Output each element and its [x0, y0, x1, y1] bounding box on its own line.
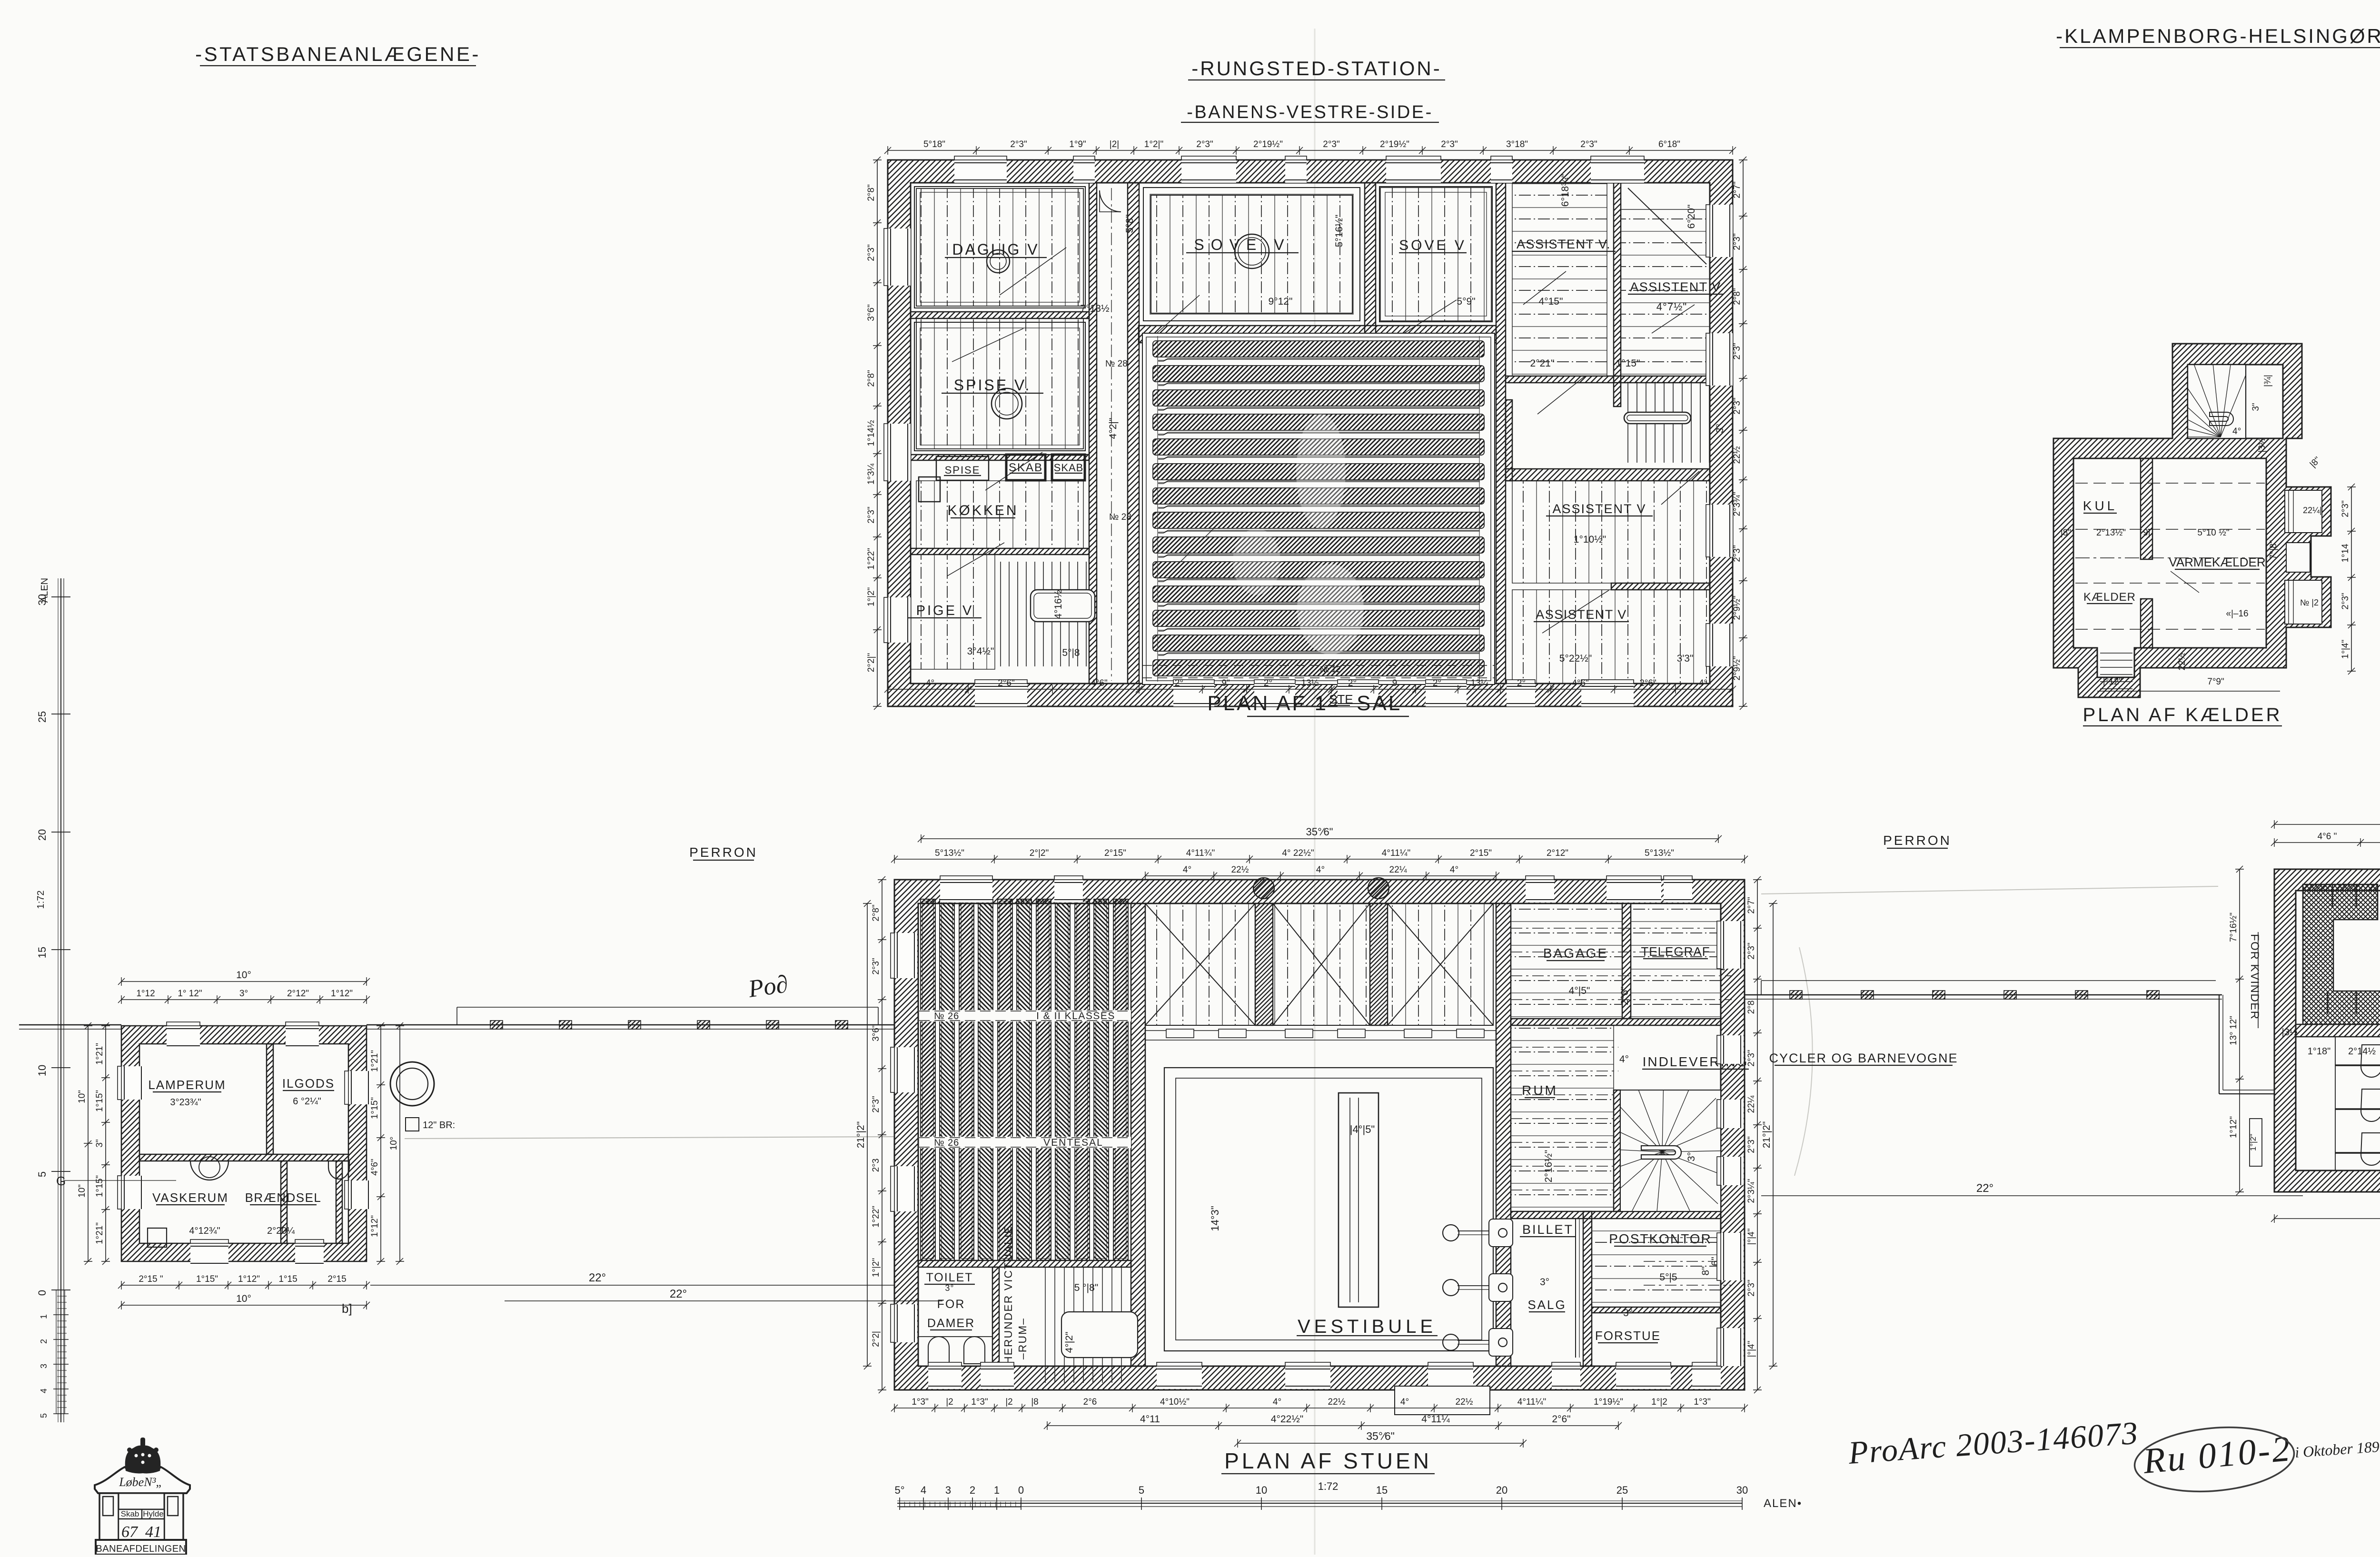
svg-text:№ 28: № 28	[1109, 512, 1131, 522]
svg-text:1: 1	[994, 1484, 1000, 1496]
svg-text:0: 0	[1018, 1484, 1024, 1496]
svg-text:22¼: 22¼	[1389, 865, 1408, 875]
svg-text:4°: 4°	[1699, 678, 1707, 688]
svg-text:1°15": 1°15"	[95, 1090, 105, 1112]
svg-text:3°23¾": 3°23¾"	[170, 1097, 201, 1108]
svg-text:1°22": 1°22"	[866, 548, 876, 570]
svg-text:2°12": 2°12"	[287, 989, 309, 999]
svg-text:3": 3"	[95, 1139, 105, 1147]
svg-text:-RUNGSTED-STATION-: -RUNGSTED-STATION-	[1191, 57, 1441, 79]
svg-text:1°22": 1°22"	[871, 1206, 881, 1228]
svg-text:4°2|": 4°2|"	[1108, 418, 1119, 439]
svg-text:1°18": 1°18"	[2308, 1046, 2330, 1057]
svg-text:2°8": 2°8"	[866, 370, 876, 387]
svg-text:Skab: Skab	[121, 1509, 139, 1518]
svg-text:PERRON: PERRON	[1883, 833, 1952, 848]
svg-text:1°12: 1°12	[136, 989, 155, 999]
svg-text:2°19½": 2°19½"	[1380, 139, 1409, 149]
svg-text:4°: 4°	[926, 678, 934, 688]
svg-text:2°19½": 2°19½"	[1253, 139, 1283, 149]
svg-text:4°12¾": 4°12¾"	[189, 1226, 220, 1236]
svg-text:PLAN AF STUEN: PLAN AF STUEN	[1224, 1448, 1432, 1473]
svg-text:RUM: RUM	[1522, 1083, 1558, 1098]
svg-text:«|–16: «|–16	[2226, 609, 2248, 619]
svg-text:1°12": 1°12"	[238, 1274, 260, 1284]
svg-text:10: 10	[1256, 1484, 1267, 1496]
svg-text:SOVE V: SOVE V	[1194, 236, 1290, 253]
svg-text:6°18": 6°18"	[1658, 139, 1680, 149]
svg-text:2°8": 2°8"	[871, 904, 881, 921]
svg-text:4°15": 4°15"	[1539, 296, 1563, 307]
svg-text:30: 30	[1736, 1484, 1748, 1496]
svg-text:4°11¾": 4°11¾"	[1186, 848, 1215, 858]
svg-text:8": 8"	[1700, 1266, 1711, 1275]
svg-text:5°18": 5°18"	[923, 139, 945, 149]
svg-text:BAGAGE: BAGAGE	[1543, 946, 1608, 961]
svg-text:DAMER: DAMER	[927, 1317, 975, 1330]
svg-text:4°11: 4°11	[1140, 1414, 1160, 1425]
svg-text:20: 20	[1496, 1484, 1507, 1496]
svg-text:1°12": 1°12"	[370, 1215, 380, 1237]
svg-text:4°: 4°	[1450, 865, 1458, 875]
svg-text:5°13½": 5°13½"	[935, 848, 964, 858]
svg-text:2°3¼": 2°3¼"	[1746, 1179, 1756, 1203]
svg-text:ALEN: ALEN	[40, 578, 50, 603]
svg-text:1°19½": 1°19½"	[1594, 1397, 1623, 1407]
svg-text:ILGODS: ILGODS	[282, 1076, 335, 1091]
svg-text:3°: 3°	[1715, 424, 1725, 433]
svg-text:21°|2": 21°|2"	[1761, 1121, 1772, 1148]
svg-text:2°8: 2°8	[1746, 1001, 1756, 1014]
svg-text:4: 4	[921, 1484, 926, 1496]
svg-text:|°|4": |°|4"	[1746, 1341, 1756, 1358]
svg-text:2°: 2°	[1517, 678, 1526, 688]
svg-text:2°: 2°	[1433, 678, 1441, 688]
svg-text:№ |2: № |2	[2300, 598, 2319, 607]
svg-text:1°2|": 1°2|"	[1144, 139, 1163, 149]
svg-text:1°21": 1°21"	[370, 1050, 380, 1072]
svg-text:25: 25	[36, 711, 48, 723]
svg-text:6 °2¼": 6 °2¼"	[293, 1096, 321, 1107]
svg-text:2°2|": 2°2|"	[866, 653, 876, 672]
svg-text:2°2|: 2°2|	[871, 1331, 881, 1347]
svg-text:LøbeN³„: LøbeN³„	[119, 1475, 163, 1489]
svg-text:1°|2": 1°|2"	[2249, 1134, 2258, 1151]
svg-text:2°8": 2°8"	[1732, 288, 1742, 305]
svg-text:I & II KLASSES: I & II KLASSES	[1036, 1011, 1115, 1021]
svg-text:1°10½": 1°10½"	[1574, 534, 1606, 545]
svg-text:1:72: 1:72	[1318, 1480, 1339, 1492]
svg-text:4°: 4°	[2232, 426, 2241, 436]
svg-text:2°9½": 2°9½"	[1732, 595, 1742, 620]
svg-text:2: 2	[39, 1339, 49, 1344]
svg-text:№ 26: № 26	[934, 1011, 959, 1021]
svg-text:2°3": 2°3"	[1746, 1136, 1756, 1153]
svg-text:2°3": 2°3"	[1441, 139, 1458, 149]
svg-text:4°6 ": 4°6 "	[2318, 832, 2337, 842]
svg-text:3°: 3°	[1623, 1308, 1633, 1319]
svg-text:25: 25	[1616, 1484, 1628, 1496]
svg-text:4°: 4°	[1183, 865, 1191, 875]
svg-text:-KLAMPENBORG-HELSINGØR-: -KLAMPENBORG-HELSINGØR-	[2056, 25, 2380, 47]
svg-text:VESTIBULE: VESTIBULE	[1298, 1316, 1437, 1337]
svg-text:15: 15	[36, 947, 48, 958]
svg-text:6°20": 6°20"	[1686, 205, 1697, 229]
svg-text:1°3": 1°3"	[912, 1397, 928, 1407]
svg-text:FORSTUE: FORSTUE	[1595, 1329, 1661, 1343]
svg-text:|8: |8	[1031, 1397, 1039, 1407]
svg-text:2°3": 2°3"	[866, 244, 876, 261]
svg-text:13½: 13½	[1301, 678, 1319, 688]
svg-text:4°: 4°	[1400, 1397, 1409, 1407]
svg-text:2°: 2°	[1175, 678, 1183, 688]
svg-text:2°13½": 2°13½"	[2096, 528, 2126, 538]
svg-text:12" BR:: 12" BR:	[423, 1120, 455, 1131]
svg-text:SPISE V.: SPISE V.	[954, 377, 1031, 394]
svg-text:7°13½: 7°13½	[1081, 303, 1110, 314]
svg-text:2°6": 2°6"	[1552, 1414, 1570, 1425]
svg-text:3": 3"	[2251, 403, 2261, 411]
svg-text:5°|8: 5°|8	[1062, 647, 1080, 658]
svg-text:1°15": 1°15"	[370, 1097, 380, 1119]
svg-text:22¼: 22¼	[1746, 1095, 1756, 1113]
svg-text:BANEAFDELINGEN: BANEAFDELINGEN	[96, 1544, 186, 1554]
svg-text:|2: |2	[946, 1397, 953, 1407]
svg-text:-STATSBANEANLÆGENE-: -STATSBANEANLÆGENE-	[195, 43, 481, 65]
svg-text:10: 10	[36, 1065, 48, 1076]
svg-text:4°6": 4°6"	[1572, 678, 1588, 688]
svg-text:Po∂: Po∂	[746, 971, 790, 1003]
svg-text:1°12": 1°12"	[2229, 1116, 2239, 1138]
svg-text:|2: |2	[1005, 1397, 1013, 1407]
svg-text:5: 5	[1139, 1484, 1144, 1496]
svg-text:2°: 2°	[1348, 678, 1357, 688]
svg-text:10": 10"	[77, 1184, 87, 1198]
svg-text:1°9": 1°9"	[1069, 139, 1086, 149]
svg-text:1°|2": 1°|2"	[866, 587, 876, 606]
svg-text:HERUNDER VICTUALIE: HERUNDER VICTUALIE	[1002, 1225, 1014, 1364]
svg-text:|°12": |°12"	[2103, 677, 2122, 687]
svg-text:2°15 ": 2°15 "	[139, 1274, 163, 1284]
svg-text:9: 9	[1392, 678, 1398, 688]
svg-text:2°3": 2°3"	[1323, 139, 1339, 149]
svg-text:LAMPERUM: LAMPERUM	[148, 1078, 226, 1092]
svg-text:41: 41	[145, 1523, 161, 1541]
svg-text:6°18¾": 6°18¾"	[1560, 174, 1571, 207]
svg-text:2°6: 2°6	[1083, 1397, 1097, 1407]
svg-text:2°3: 2°3	[871, 1159, 881, 1172]
svg-text:1°14½: 1°14½	[866, 420, 876, 446]
svg-text:4°: 4°	[1316, 865, 1325, 875]
svg-text:CYCLER OG BARNEVOGNE: CYCLER OG BARNEVOGNE	[1769, 1051, 1958, 1065]
svg-text:SKAB: SKAB	[1054, 462, 1084, 474]
svg-text:7°16½": 7°16½"	[2229, 912, 2239, 942]
svg-text:5°13½": 5°13½"	[1645, 848, 1674, 858]
svg-text:|¾|: |¾|	[2263, 375, 2273, 387]
svg-text:0: 0	[36, 1290, 48, 1296]
svg-text:№ 28: № 28	[1105, 359, 1128, 369]
svg-text:1°3": 1°3"	[971, 1397, 988, 1407]
svg-text:22¼|: 22¼|	[2303, 506, 2322, 515]
svg-text:2°: 2°	[1264, 678, 1272, 688]
svg-text:3°6": 3°6"	[871, 1024, 881, 1041]
svg-text:3°: 3°	[1540, 1277, 1549, 1288]
svg-text:21°|2": 21°|2"	[855, 1121, 866, 1148]
svg-text:35°⁄6": 35°⁄6"	[1366, 1430, 1395, 1442]
svg-text:1°|4": 1°|4"	[2340, 640, 2350, 659]
svg-text:2°6": 2°6"	[1639, 678, 1656, 688]
svg-text:4°: 4°	[1273, 1397, 1281, 1407]
svg-text:2°14½: 2°14½	[2348, 1046, 2376, 1057]
svg-text:5: 5	[39, 1413, 49, 1418]
svg-text:2°12": 2°12"	[1547, 848, 1568, 858]
svg-text:5°16½": 5°16½"	[1334, 215, 1345, 247]
svg-text:2°6": 2°6"	[1619, 986, 1630, 1005]
svg-text:№ 26: № 26	[934, 1138, 959, 1148]
svg-text:10": 10"	[77, 1090, 87, 1103]
svg-text:PLAN AF KÆLDER: PLAN AF KÆLDER	[2082, 704, 2282, 725]
svg-text:b]: b]	[342, 1301, 352, 1316]
svg-text:BRÆNDSEL: BRÆNDSEL	[245, 1190, 322, 1205]
svg-text:10°: 10°	[389, 1137, 399, 1150]
svg-text:1°|2": 1°|2"	[871, 1258, 881, 1277]
svg-text:14°3": 14°3"	[1209, 1206, 1221, 1231]
svg-text:2°3": 2°3"	[1732, 233, 1742, 250]
svg-text:9|: 9|	[2143, 528, 2151, 538]
svg-text:4°: 4°	[1619, 1054, 1629, 1065]
svg-text:ASSISTENT V: ASSISTENT V	[1552, 502, 1646, 516]
svg-text:KÆLDER: KÆLDER	[2083, 591, 2136, 604]
svg-text:STE: STE	[1329, 692, 1353, 706]
svg-text:1°21": 1°21"	[95, 1043, 105, 1065]
svg-text:|3½: |3½	[2257, 437, 2267, 453]
svg-text:13¼: 13¼	[1471, 678, 1489, 688]
svg-text:BILLET: BILLET	[1522, 1222, 1574, 1237]
svg-text:POSTKONTOR: POSTKONTOR	[1609, 1231, 1712, 1246]
svg-text:3°6": 3°6"	[866, 304, 876, 321]
svg-text:3°: 3°	[1686, 1152, 1697, 1161]
svg-text:FOR KVINDER: FOR KVINDER	[2248, 934, 2261, 1020]
svg-text:SALG: SALG	[1527, 1298, 1566, 1312]
svg-text:67: 67	[121, 1523, 139, 1541]
svg-text:PERRON: PERRON	[689, 845, 758, 860]
svg-text:№ 12: № 12	[1320, 664, 1341, 674]
svg-text:4°7½": 4°7½"	[1656, 301, 1687, 313]
svg-text:4°16½: 4°16½	[1053, 590, 1064, 619]
svg-text:2°3": 2°3"	[1746, 942, 1756, 959]
svg-text:7°9": 7°9"	[2207, 677, 2224, 687]
svg-text:5°22½": 5°22½"	[1559, 653, 1592, 664]
svg-text:ALEN•: ALEN•	[1764, 1497, 1802, 1510]
svg-text:4°6": 4°6"	[370, 1159, 380, 1175]
svg-text:2°9½": 2°9½"	[1732, 656, 1742, 680]
svg-text:2°3¾": 2°3¾"	[1732, 492, 1742, 516]
svg-text:1°15": 1°15"	[196, 1274, 218, 1284]
svg-text:PIGE V: PIGE V	[916, 603, 974, 618]
svg-text:|3½: |3½	[2282, 1027, 2298, 1038]
svg-text:22½: 22½	[2177, 653, 2187, 670]
svg-text:2: 2	[970, 1484, 975, 1496]
svg-text:VENTESAL: VENTESAL	[1043, 1137, 1103, 1148]
svg-text:ASSISTENT V: ASSISTENT V	[1630, 280, 1721, 294]
svg-text:1°|2: 1°|2	[1651, 1397, 1667, 1407]
svg-text:22½: 22½	[1732, 446, 1742, 464]
svg-text:9": 9"	[1221, 678, 1230, 688]
svg-text:22°: 22°	[670, 1288, 687, 1300]
svg-text:2°7": 2°7"	[1746, 897, 1756, 913]
svg-text:1°15: 1°15	[278, 1274, 297, 1284]
svg-text:4°11¼: 4°11¼	[1421, 1414, 1450, 1425]
svg-text:1°15": 1°15"	[95, 1175, 105, 1197]
svg-text:4°|2": 4°|2"	[1064, 1332, 1075, 1353]
svg-text:2°15": 2°15"	[1104, 848, 1126, 858]
svg-text:FOR: FOR	[937, 1298, 965, 1311]
svg-text:2°8": 2°8"	[866, 184, 876, 201]
svg-text:2°|2": 2°|2"	[1030, 848, 1049, 858]
svg-text:3'3": 3'3"	[1677, 653, 1694, 664]
svg-text:4°11¼": 4°11¼"	[1382, 848, 1410, 858]
svg-text:–RUM–: –RUM–	[1016, 1318, 1029, 1359]
svg-text:VARMEKÆLDER: VARMEKÆLDER	[2169, 555, 2265, 569]
svg-text:22½: 22½	[1328, 1397, 1346, 1407]
svg-text:5°: 5°	[894, 1484, 904, 1496]
svg-text:1°12": 1°12"	[331, 989, 353, 999]
svg-text:-BANENS-VESTRE-SIDE-: -BANENS-VESTRE-SIDE-	[1187, 102, 1433, 122]
svg-text:5°|5: 5°|5	[1659, 1272, 1677, 1283]
svg-text:15: 15	[1376, 1484, 1388, 1496]
svg-text:4°22½": 4°22½"	[1271, 1414, 1303, 1425]
svg-text:20: 20	[36, 829, 48, 841]
svg-text:2°6": 2°6"	[998, 678, 1014, 688]
svg-text:3°4½": 3°4½"	[967, 646, 994, 657]
svg-text:|4°|5": |4°|5"	[1350, 1123, 1375, 1135]
svg-text:SAL: SAL	[1357, 692, 1402, 715]
svg-text:13° 12": 13° 12"	[2229, 1016, 2239, 1045]
svg-text:4°|5": 4°|5"	[1569, 985, 1590, 996]
svg-text:SPISE: SPISE	[945, 464, 981, 476]
svg-text:|°|4": |°|4"	[1746, 1229, 1756, 1245]
svg-text:2°3": 2°3"	[1746, 1279, 1756, 1296]
svg-text:3: 3	[39, 1364, 49, 1369]
svg-text:KØKKEN: KØKKEN	[947, 503, 1018, 518]
svg-text:2°20¼: 2°20¼	[267, 1226, 295, 1236]
svg-text:5°8": 5°8"	[1124, 214, 1135, 233]
svg-text:22°: 22°	[589, 1271, 606, 1284]
svg-text:Hylde: Hylde	[143, 1509, 163, 1518]
svg-text:3°: 3°	[239, 989, 248, 999]
svg-text:2°3": 2°3"	[1010, 139, 1027, 149]
svg-text:2°21": 2°21"	[1530, 358, 1555, 369]
svg-text:|8": |8"	[2061, 528, 2071, 538]
svg-text:SOVE V: SOVE V	[1399, 238, 1467, 253]
svg-text:1°3¼: 1°3¼	[866, 463, 876, 485]
svg-text:2°3": 2°3"	[1732, 343, 1742, 359]
svg-text:KUL: KUL	[2083, 498, 2117, 513]
svg-text:TELEGRAF: TELEGRAF	[1641, 944, 1710, 959]
svg-text:22°: 22°	[1976, 1182, 1993, 1195]
svg-text:2°3": 2°3"	[2340, 593, 2350, 609]
svg-text:9°12": 9°12"	[1269, 296, 1293, 307]
svg-text:3°18": 3°18"	[1506, 139, 1528, 149]
svg-text:PLAN AF 1: PLAN AF 1	[1207, 692, 1328, 715]
svg-text:5°9": 5°9"	[1457, 296, 1475, 307]
svg-text:TOILET: TOILET	[926, 1271, 973, 1284]
svg-text:10°: 10°	[236, 970, 251, 981]
svg-text:10°: 10°	[236, 1293, 251, 1304]
svg-text:DAGLIG V: DAGLIG V	[952, 241, 1039, 258]
svg-text:1°3": 1°3"	[1694, 1397, 1710, 1407]
svg-text:ASSISTENT V.: ASSISTENT V.	[1517, 237, 1611, 251]
svg-text:2°7": 2°7"	[1732, 181, 1742, 198]
svg-text:7°|8": 7°|8"	[2269, 540, 2279, 559]
svg-text:2°3": 2°3"	[866, 506, 876, 523]
svg-text:4: 4	[39, 1388, 49, 1393]
svg-text:1°15": 1°15"	[1616, 358, 1640, 369]
svg-text:2°3": 2°3"	[1732, 397, 1742, 414]
svg-text:2°3": 2°3"	[2340, 500, 2350, 517]
svg-text:22½: 22½	[1231, 865, 1249, 875]
svg-text:VASKERUM: VASKERUM	[152, 1190, 228, 1205]
svg-text:3°: 3°	[945, 1283, 954, 1293]
svg-text:2°3": 2°3"	[871, 1096, 881, 1112]
svg-text:|2|: |2|	[1110, 139, 1119, 149]
svg-text:1: 1	[39, 1314, 49, 1319]
svg-text:4°11¼": 4°11¼"	[1517, 1397, 1546, 1407]
svg-text:SKAB: SKAB	[1009, 461, 1043, 474]
svg-text:22½: 22½	[1456, 1397, 1473, 1407]
svg-text:4°10½": 4°10½"	[1160, 1397, 1190, 1407]
svg-text:2°3": 2°3"	[871, 958, 881, 974]
svg-text:2°3": 2°3"	[1196, 139, 1213, 149]
svg-text:1°14: 1°14	[2340, 544, 2350, 563]
svg-text:4° 22½": 4° 22½"	[1282, 848, 1314, 858]
svg-text:ASSISTENT V: ASSISTENT V	[1536, 607, 1627, 622]
svg-text:5: 5	[36, 1171, 48, 1177]
svg-text:2°3": 2°3"	[1580, 139, 1597, 149]
svg-text:2°3": 2°3"	[1732, 545, 1742, 562]
svg-text:1:72: 1:72	[36, 891, 46, 909]
svg-text:1°21": 1°21"	[95, 1222, 105, 1244]
svg-text:4°6": 4°6"	[1091, 678, 1107, 688]
svg-text:2°15": 2°15"	[1470, 848, 1492, 858]
svg-text:1° 12": 1° 12"	[178, 989, 202, 999]
svg-text:3: 3	[945, 1484, 951, 1496]
svg-text:35°⁄6": 35°⁄6"	[1306, 826, 1333, 838]
svg-text:2°3": 2°3"	[1746, 1050, 1756, 1066]
svg-text:5 °|8": 5 °|8"	[1074, 1282, 1099, 1293]
svg-text:5°10 ½": 5°10 ½"	[2197, 528, 2229, 538]
svg-text:2°15: 2°15	[327, 1274, 346, 1284]
